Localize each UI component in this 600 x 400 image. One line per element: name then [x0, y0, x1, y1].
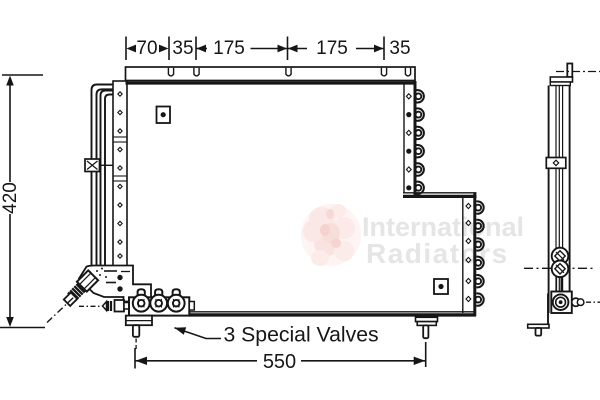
svg-text:35: 35: [389, 38, 410, 59]
svg-text:175: 175: [213, 38, 245, 59]
svg-text:70: 70: [136, 38, 157, 59]
svg-text:420: 420: [0, 182, 21, 214]
svg-text:3 Special Valves: 3 Special Valves: [224, 324, 379, 347]
svg-text:Radiators: Radiators: [366, 238, 509, 269]
svg-text:550: 550: [263, 351, 296, 373]
svg-text:175: 175: [316, 38, 348, 59]
svg-text:35: 35: [172, 38, 193, 59]
